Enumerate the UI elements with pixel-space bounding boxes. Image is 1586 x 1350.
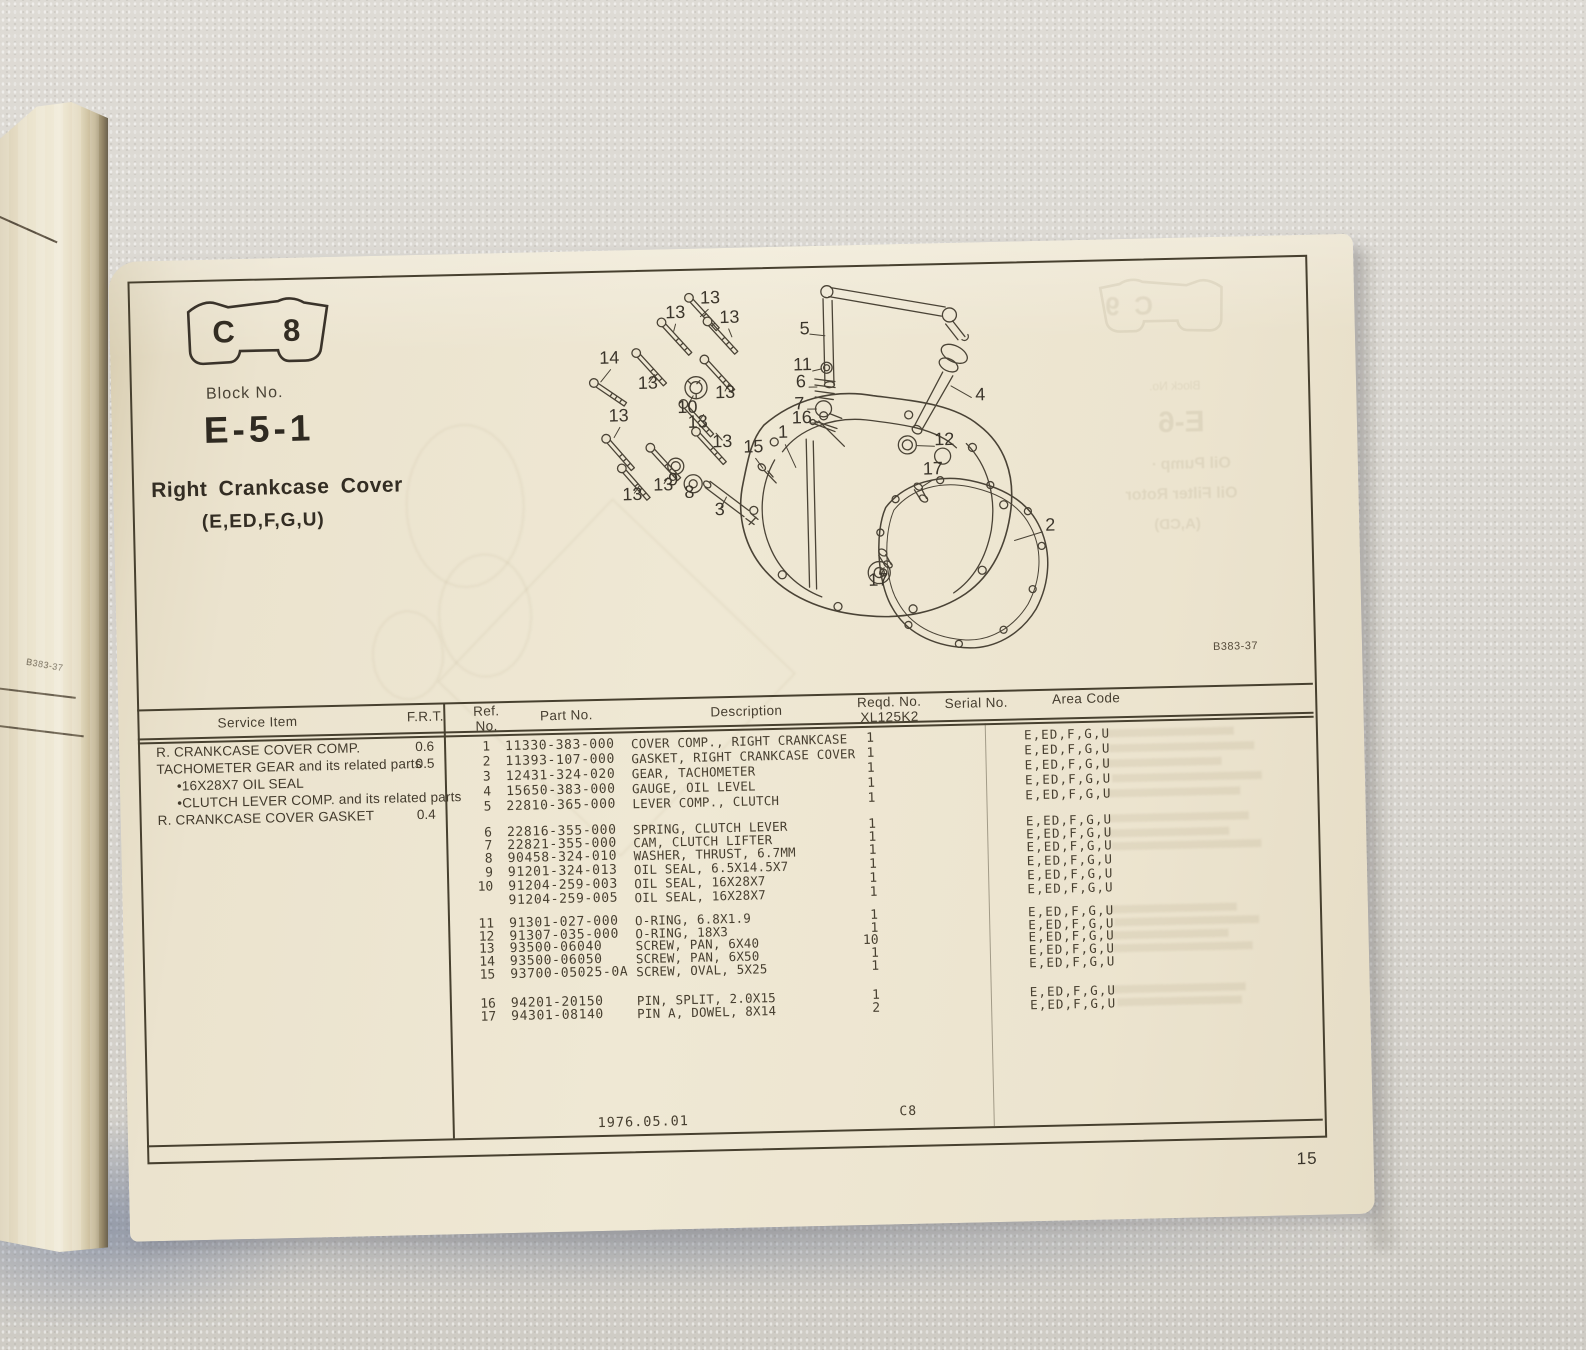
exploded-parts-diagram: 1313131313131313131314101519835116716412… xyxy=(548,266,1077,668)
parts-ref-cell: 17 xyxy=(458,1009,496,1025)
parts-partno-cell: 22810-365-000 xyxy=(506,797,616,814)
col-header-part-no: Part No. xyxy=(516,707,616,724)
parts-qty-cell: 1 xyxy=(835,885,877,901)
diagram-callout-number: 17 xyxy=(868,569,888,589)
col-header-reqd-model: XL125K2 xyxy=(839,708,939,725)
diagram-callout-number: 2 xyxy=(1045,515,1055,535)
parts-partno-cell: 93700-05025-0A xyxy=(510,964,628,982)
col-header-ref: Ref. xyxy=(461,703,511,719)
diagram-callout-number: 3 xyxy=(715,499,725,519)
diagram-callout-number: 1 xyxy=(778,422,788,442)
diagram-callout-number: 5 xyxy=(799,318,809,338)
diagram-callout-number: 9 xyxy=(668,469,678,489)
parts-area-cell: E,ED,F,G,U xyxy=(1030,995,1117,1012)
diagram-callout-number: 13 xyxy=(719,307,739,327)
service-frt-cell: 0.6 xyxy=(389,739,434,755)
page-subtitle: (E,ED,F,G,U) xyxy=(202,509,325,534)
parts-qty-cell: 1 xyxy=(833,761,875,777)
diagram-callout-number: 13 xyxy=(665,302,685,322)
catalog-page: C 9 Block No. E-6 Oil Pump · Oil Filter … xyxy=(108,234,1375,1242)
diagram-callout-number: 14 xyxy=(599,347,619,367)
diagram-callout-number: 13 xyxy=(608,405,628,425)
service-item-cell: •16X28X7 OIL SEAL xyxy=(177,776,304,794)
parts-ref-cell: 5 xyxy=(453,799,491,815)
col-header-description: Description xyxy=(686,702,806,720)
oil-gauge-part xyxy=(909,340,973,436)
parts-partno-cell: 94301-08140 xyxy=(511,1007,604,1024)
previous-page-edge: B383-37 xyxy=(0,102,108,1252)
block-no: E-5-1 xyxy=(203,407,314,451)
diagram-callout-numbers: 1313131313131313131314101519835116716412… xyxy=(598,280,1057,596)
diagram-callout-number: 6 xyxy=(796,371,806,391)
diagram-ref-code: B383-37 xyxy=(1213,640,1258,653)
diagram-callout-number: 12 xyxy=(934,429,954,449)
diagram-callout-number: 16 xyxy=(791,407,811,427)
parts-ref-cell: 10 xyxy=(455,879,493,895)
diagram-callout-number: 4 xyxy=(975,384,985,404)
tab-letter: C xyxy=(212,314,235,349)
page-number: 15 xyxy=(1296,1149,1317,1169)
parts-qty-cell: 1 xyxy=(837,959,879,975)
dowel-pin-17-part xyxy=(876,481,931,569)
diagram-callout-number: 17 xyxy=(923,458,943,478)
parts-qty-cell: 1 xyxy=(833,791,875,807)
col-header-serial-no: Serial No. xyxy=(926,694,1026,711)
parts-area-cell: E,ED,F,G,U xyxy=(1027,879,1114,896)
parts-qty-cell: 1 xyxy=(832,746,874,762)
col-header-ref2: No. xyxy=(461,718,511,734)
diagram-callout-number: 13 xyxy=(638,373,658,393)
diagram-callout-number: 13 xyxy=(715,382,735,402)
parts-ref-cell: 15 xyxy=(457,967,495,983)
parts-ref-cell: 3 xyxy=(453,769,491,785)
clutch-cam-7-part xyxy=(815,400,841,419)
parts-desc-cell: PIN A, DOWEL, 8X14 xyxy=(637,1003,776,1021)
photo-background-fabric: B383-37 C 9 Block No. E-6 Oil Pump · Oil… xyxy=(0,0,1586,1350)
o-ring-11-part xyxy=(821,362,832,373)
diagram-callout-number: 10 xyxy=(677,397,697,417)
oil-seal-10-part xyxy=(685,376,707,398)
page-edge-sheen xyxy=(0,102,108,1252)
parts-qty-cell: 1 xyxy=(833,776,875,792)
diagram-callout-number: 13 xyxy=(700,287,720,307)
diagram-callout-number: 13 xyxy=(622,484,642,504)
parts-area-cell: E,ED,F,G,U xyxy=(1029,953,1116,970)
parts-area-cell: E,ED,F,G,U xyxy=(1025,785,1112,802)
gasket-part xyxy=(876,474,1050,650)
footer-issue-date: 1976.05.01 xyxy=(597,1113,689,1131)
diagram-callout-number: 8 xyxy=(684,482,694,502)
col-header-area-code: Area Code xyxy=(1036,690,1136,707)
parts-desc-cell: SCREW, OVAL, 5X25 xyxy=(636,961,768,979)
col-header-frt: F.R.T. xyxy=(395,708,455,724)
parts-ref-cell: 1 xyxy=(452,739,490,755)
footer-page-code: C8 xyxy=(899,1104,917,1119)
parts-ref-cell: 2 xyxy=(452,754,490,770)
parts-qty-cell: 2 xyxy=(838,1001,880,1017)
parts-ref-cell: 4 xyxy=(453,784,491,800)
service-frt-cell: 0.4 xyxy=(390,807,435,823)
leader-lines xyxy=(599,302,1043,584)
clutch-lever-part xyxy=(821,283,970,388)
block-tab-c8: C 8 xyxy=(181,293,335,370)
service-frt-cell: 0.5 xyxy=(389,756,434,772)
o-ring-12-part xyxy=(898,436,916,454)
screw-bolt xyxy=(657,317,692,355)
diagram-callout-number: 15 xyxy=(743,436,763,456)
parts-desc-cell: OIL SEAL, 16X28X7 xyxy=(634,887,766,905)
block-no-label: Block No. xyxy=(206,384,284,404)
col-header-service-item: Service Item xyxy=(187,713,327,731)
parts-partno-cell: 91204-259-005 xyxy=(508,891,618,908)
tachometer-gear-shaft-part xyxy=(702,478,758,525)
tab-number: 8 xyxy=(283,313,301,348)
parts-qty-cell: 1 xyxy=(832,731,874,747)
diagram-callout-number: 13 xyxy=(712,431,732,451)
screw-bolt xyxy=(589,378,626,407)
